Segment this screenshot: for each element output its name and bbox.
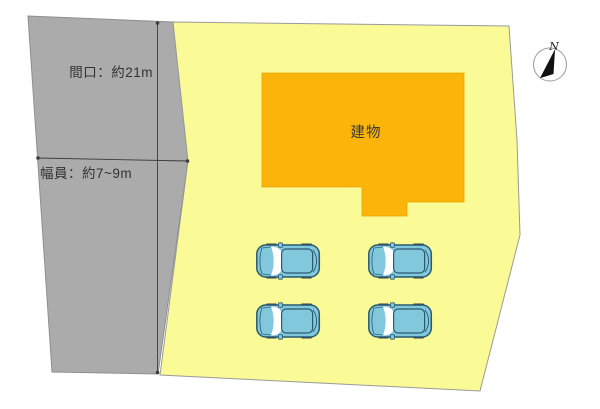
site-plan-page: 建物 間口：約21m 幅員：約7~9m N xyxy=(0,0,600,409)
compass: N xyxy=(534,40,567,81)
dimension-end-dot xyxy=(156,371,160,375)
compass-north-label: N xyxy=(548,40,559,53)
car xyxy=(257,243,320,279)
site-plan-diagram: 建物 間口：約21m 幅員：約7~9m N xyxy=(0,0,600,409)
road-width-label: 幅員：約7~9m xyxy=(40,166,132,181)
dimension-end-dot xyxy=(186,159,190,163)
dimension-end-dot xyxy=(36,156,40,160)
car xyxy=(257,303,320,339)
building-label: 建物 xyxy=(351,124,382,141)
dimension-end-dot xyxy=(156,21,160,25)
frontage-label: 間口：約21m xyxy=(69,65,153,80)
car xyxy=(369,303,432,339)
car xyxy=(369,243,432,279)
